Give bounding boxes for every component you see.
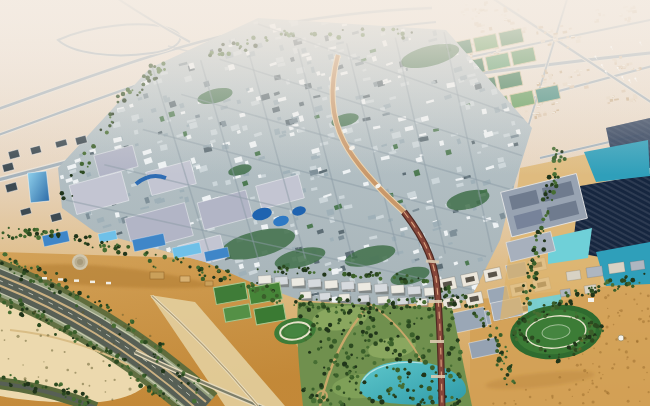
- tree: [564, 291, 567, 294]
- park-tree: [336, 386, 340, 390]
- tree: [78, 238, 82, 242]
- park-tree: [362, 310, 365, 313]
- park-tree: [409, 397, 412, 400]
- desert-speck: [582, 354, 583, 355]
- tree: [384, 303, 388, 307]
- tree: [148, 259, 152, 263]
- desert-speck: [648, 391, 650, 393]
- tree: [187, 382, 190, 385]
- park-tree: [392, 305, 396, 309]
- tree: [2, 237, 4, 239]
- desert-speck: [607, 308, 608, 309]
- park-tree: [378, 395, 383, 400]
- tree: [15, 236, 18, 239]
- tree: [497, 356, 502, 361]
- tree: [98, 300, 100, 302]
- tree: [590, 338, 594, 342]
- orange-roof-building: [205, 281, 213, 286]
- park-tree: [413, 306, 416, 309]
- tree: [345, 298, 349, 302]
- tree: [8, 235, 10, 237]
- tree: [35, 314, 39, 318]
- tree: [197, 379, 201, 383]
- tree: [62, 196, 66, 200]
- tree: [527, 320, 530, 323]
- park-tree: [358, 314, 363, 319]
- tree: [544, 350, 547, 353]
- tree: [522, 291, 525, 294]
- park-tree: [311, 323, 316, 328]
- tree: [507, 366, 511, 370]
- park-tree: [421, 374, 423, 376]
- tree: [30, 384, 33, 387]
- tree: [13, 378, 17, 382]
- desert-speck: [647, 294, 650, 297]
- tree: [544, 214, 547, 217]
- tree: [583, 318, 585, 320]
- tree: [158, 390, 162, 394]
- tree: [75, 304, 78, 307]
- tree: [272, 290, 274, 292]
- tree: [541, 217, 545, 221]
- tree: [590, 293, 595, 298]
- tree: [188, 265, 191, 268]
- park-tree: [328, 323, 332, 327]
- desert-speck: [642, 320, 645, 323]
- tree: [54, 383, 58, 387]
- tree: [379, 277, 383, 281]
- desert-speck: [583, 369, 586, 372]
- tree: [541, 247, 546, 252]
- tree: [114, 359, 119, 364]
- white-compound: [90, 281, 95, 284]
- tree: [78, 400, 82, 404]
- park-tree: [365, 331, 369, 335]
- tree: [464, 304, 468, 308]
- tree: [489, 325, 491, 327]
- tree: [397, 298, 400, 301]
- tree: [342, 272, 347, 277]
- tree: [128, 371, 133, 376]
- tree: [359, 276, 362, 279]
- park-tree: [361, 349, 366, 354]
- tree: [112, 358, 114, 360]
- desert-speck: [645, 337, 648, 340]
- park-tree: [387, 341, 390, 344]
- tree: [18, 228, 20, 230]
- tree: [156, 356, 159, 359]
- desert-speck: [575, 383, 577, 385]
- tree: [486, 312, 490, 316]
- glass-tower: [27, 171, 49, 203]
- tree: [554, 181, 558, 185]
- tree: [587, 335, 592, 340]
- tree: [53, 292, 56, 295]
- park-tree: [350, 375, 352, 377]
- desert-speck: [633, 298, 635, 300]
- desert-speck: [613, 324, 615, 326]
- tree: [527, 264, 529, 266]
- park-tree: [392, 393, 395, 396]
- tree: [240, 285, 242, 287]
- tree: [196, 389, 198, 391]
- scrub-bush: [142, 336, 144, 338]
- tree: [222, 276, 227, 281]
- tree: [34, 235, 36, 237]
- park-tree: [347, 311, 351, 315]
- park-tree: [332, 339, 337, 344]
- tree: [68, 331, 72, 335]
- tree: [294, 300, 298, 304]
- tree: [403, 280, 408, 285]
- tree: [57, 283, 61, 287]
- tree: [74, 234, 78, 238]
- tree: [16, 263, 19, 266]
- park-tree: [397, 335, 400, 338]
- tree: [212, 276, 215, 279]
- desert-speck: [492, 402, 494, 404]
- park-tree: [311, 398, 316, 403]
- desert-speck: [643, 379, 644, 380]
- tree: [593, 336, 597, 340]
- desert-speck: [625, 293, 627, 295]
- tree: [182, 257, 184, 259]
- tree: [347, 272, 351, 276]
- tree: [2, 231, 5, 234]
- park-tree: [453, 347, 455, 349]
- desert-speck: [598, 372, 600, 374]
- park-tree: [419, 384, 423, 388]
- tree: [387, 299, 391, 303]
- tree: [298, 266, 301, 269]
- scrub-bush: [89, 385, 91, 387]
- orange-roof-building: [150, 272, 164, 279]
- park-tree: [307, 327, 309, 329]
- tree: [543, 239, 546, 242]
- tree: [175, 256, 178, 259]
- park-tree: [449, 346, 454, 351]
- park-tree: [330, 389, 333, 392]
- tree: [201, 277, 205, 281]
- tree: [526, 341, 528, 343]
- park-tree: [374, 331, 378, 335]
- desert-speck: [598, 365, 600, 367]
- tree: [352, 304, 355, 307]
- tree: [340, 304, 343, 307]
- tree: [88, 341, 92, 345]
- tree: [500, 368, 503, 371]
- cross-bridge: [429, 300, 442, 303]
- tree: [8, 311, 12, 315]
- desert-speck: [604, 390, 606, 392]
- park-tree: [386, 366, 389, 369]
- tree: [58, 384, 60, 386]
- scrub-bush: [123, 325, 126, 328]
- tree: [138, 383, 143, 388]
- tree: [417, 277, 419, 279]
- park-tree: [405, 305, 409, 309]
- terraced-house: [358, 282, 372, 291]
- tree: [630, 278, 635, 283]
- tree: [95, 344, 97, 346]
- park-tree: [399, 358, 403, 362]
- desert-speck: [589, 389, 590, 390]
- tree: [155, 392, 157, 394]
- desert-speck: [641, 310, 643, 312]
- park-tree: [322, 395, 326, 399]
- tree: [329, 298, 332, 301]
- tree: [193, 382, 195, 384]
- scrub-bush: [103, 338, 105, 340]
- tree: [92, 346, 96, 350]
- tree: [536, 339, 540, 343]
- tree: [530, 269, 533, 272]
- park-tree: [398, 353, 402, 357]
- park-tree: [356, 375, 360, 379]
- scrub-bush: [40, 334, 42, 336]
- tree: [446, 286, 450, 290]
- tree: [535, 238, 538, 241]
- scrub-bush: [74, 372, 76, 374]
- park-tree: [450, 396, 453, 399]
- park-tree: [422, 347, 424, 349]
- scrub-bush: [111, 326, 113, 328]
- tree: [19, 278, 23, 282]
- desert-speck: [608, 315, 610, 317]
- tree: [555, 302, 557, 304]
- tree: [9, 305, 13, 309]
- scrub-bush: [111, 399, 113, 401]
- scrub-bush: [105, 380, 107, 382]
- tree: [75, 337, 78, 340]
- tree: [526, 315, 529, 318]
- park-tree: [349, 380, 351, 382]
- tree: [215, 265, 219, 269]
- tree: [198, 269, 201, 272]
- tree: [64, 285, 68, 289]
- tree: [396, 273, 399, 276]
- park-tree: [298, 303, 302, 307]
- park-tree: [303, 387, 305, 389]
- park-tree: [388, 387, 392, 391]
- park-tree: [349, 343, 354, 348]
- scrub-bush: [47, 334, 50, 337]
- tree: [532, 345, 534, 347]
- tree: [527, 275, 531, 279]
- tree: [2, 300, 6, 304]
- desert-speck: [633, 360, 636, 363]
- park-tree: [335, 363, 339, 367]
- tree: [104, 317, 106, 319]
- tree: [155, 254, 157, 256]
- park-tree: [366, 326, 371, 331]
- tree: [35, 228, 39, 232]
- tree: [515, 327, 519, 331]
- tree: [488, 334, 492, 338]
- tree: [400, 280, 404, 284]
- desert-speck: [579, 347, 582, 350]
- tree: [201, 271, 203, 273]
- tree: [74, 340, 77, 343]
- tree: [285, 273, 287, 275]
- tree: [81, 392, 85, 396]
- park-tree: [342, 329, 345, 332]
- desert-speck: [615, 338, 617, 340]
- tree: [534, 234, 537, 237]
- park-tree: [395, 357, 399, 361]
- tree: [519, 329, 521, 331]
- desert-speck: [513, 400, 515, 402]
- tree: [108, 364, 111, 367]
- tree: [130, 320, 133, 323]
- park-tree: [372, 319, 374, 321]
- tree: [2, 252, 6, 256]
- tree: [9, 384, 13, 388]
- tree: [42, 386, 44, 388]
- tree: [108, 245, 111, 248]
- tree: [126, 245, 130, 249]
- tree: [523, 319, 527, 323]
- tree: [42, 310, 45, 313]
- terraced-house: [391, 285, 405, 294]
- scrub-bush: [98, 328, 101, 331]
- tree: [154, 345, 156, 347]
- tree: [591, 287, 593, 289]
- desert-speck: [559, 402, 562, 405]
- tree: [461, 294, 463, 296]
- park-tree: [368, 333, 373, 338]
- park-tree: [423, 401, 426, 404]
- park-tree: [417, 305, 421, 309]
- tree: [557, 302, 561, 306]
- tree: [285, 267, 289, 271]
- white-compound: [74, 279, 79, 282]
- park-tree: [322, 372, 326, 376]
- tree: [87, 295, 90, 298]
- scene-svg: [0, 0, 650, 406]
- tree: [72, 397, 76, 401]
- desert-speck: [617, 312, 619, 314]
- tree: [25, 307, 28, 310]
- tree: [102, 248, 107, 253]
- park-tree: [407, 320, 410, 323]
- scrub-bush: [122, 314, 124, 316]
- park-tree: [431, 401, 435, 405]
- tree: [445, 307, 447, 309]
- tree: [154, 354, 156, 356]
- scrub-bush: [149, 335, 151, 337]
- desert-speck: [580, 339, 583, 342]
- tree: [309, 271, 312, 274]
- tree: [145, 374, 147, 376]
- tree: [504, 346, 506, 348]
- desert-speck: [604, 296, 607, 299]
- tree: [132, 329, 136, 333]
- terraced-house: [291, 277, 305, 286]
- tree: [145, 251, 148, 254]
- tree: [38, 310, 40, 312]
- park-tree: [457, 341, 459, 343]
- park-tree: [379, 339, 383, 343]
- park-tree: [390, 322, 393, 325]
- tree: [617, 285, 620, 288]
- tree: [370, 271, 373, 274]
- tree: [250, 282, 253, 285]
- tree: [554, 176, 556, 178]
- park-tree: [345, 365, 349, 369]
- scrub-bush: [100, 351, 103, 354]
- tree: [121, 364, 124, 367]
- desert-speck: [568, 389, 570, 391]
- tree: [482, 324, 486, 328]
- tree: [468, 306, 471, 309]
- tree: [77, 291, 82, 296]
- desert-speck: [607, 392, 610, 395]
- scrub-bush: [119, 352, 121, 354]
- park-tree: [364, 354, 367, 357]
- tree: [266, 270, 268, 272]
- tree: [73, 330, 77, 334]
- tree: [153, 353, 155, 355]
- tree: [429, 297, 431, 299]
- tree: [50, 320, 53, 323]
- desert-speck: [602, 374, 603, 375]
- tree: [55, 272, 58, 275]
- desert-speck: [576, 364, 579, 367]
- tree: [328, 268, 331, 271]
- park-tree: [406, 324, 411, 329]
- tree: [23, 235, 27, 239]
- park-tree: [392, 368, 395, 371]
- desert-speck: [504, 402, 506, 404]
- tree: [543, 304, 546, 307]
- tree: [475, 315, 478, 318]
- tree: [444, 294, 448, 298]
- tree: [495, 349, 499, 353]
- desert-speck: [620, 309, 623, 312]
- park-tree: [329, 344, 334, 349]
- tree: [277, 271, 279, 273]
- park-tree: [408, 359, 413, 364]
- scrub-bush: [128, 388, 131, 391]
- tree: [176, 400, 178, 402]
- desert-speck: [624, 337, 627, 340]
- park-tree: [423, 360, 428, 365]
- tree: [45, 386, 48, 389]
- park-tree: [348, 371, 351, 374]
- tree: [358, 298, 362, 302]
- desert-speck: [582, 379, 584, 381]
- park-tree: [311, 387, 314, 390]
- park-tree: [343, 392, 345, 394]
- tree: [572, 353, 575, 356]
- park-tree: [421, 355, 423, 357]
- tree: [115, 354, 119, 358]
- scrub-bush: [8, 358, 10, 360]
- scrub-bush: [138, 364, 140, 366]
- tree: [225, 270, 227, 272]
- tree: [59, 328, 62, 331]
- tree: [44, 271, 47, 274]
- park-tree: [312, 304, 314, 306]
- tree: [49, 235, 52, 238]
- tree: [277, 266, 281, 270]
- desert-speck: [626, 366, 629, 369]
- tree: [539, 226, 544, 231]
- tree: [576, 292, 579, 295]
- tree: [178, 374, 182, 378]
- tree: [162, 255, 167, 260]
